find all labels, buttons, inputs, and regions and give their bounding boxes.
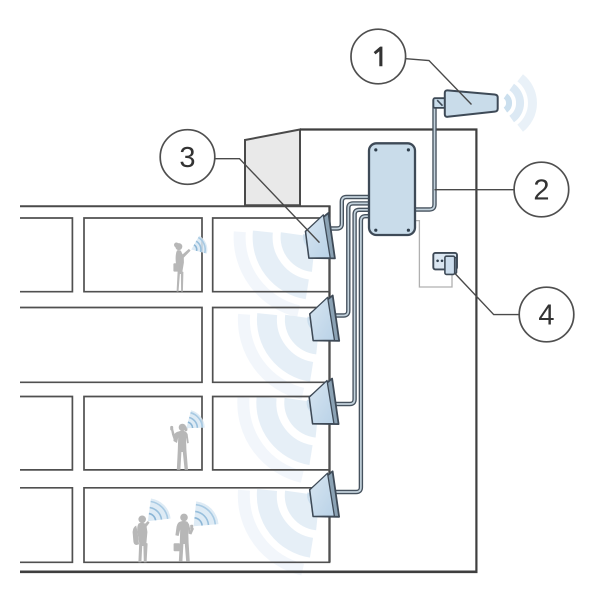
svg-text:4: 4 bbox=[538, 300, 554, 332]
svg-text:2: 2 bbox=[533, 175, 549, 207]
svg-text:3: 3 bbox=[179, 142, 195, 174]
